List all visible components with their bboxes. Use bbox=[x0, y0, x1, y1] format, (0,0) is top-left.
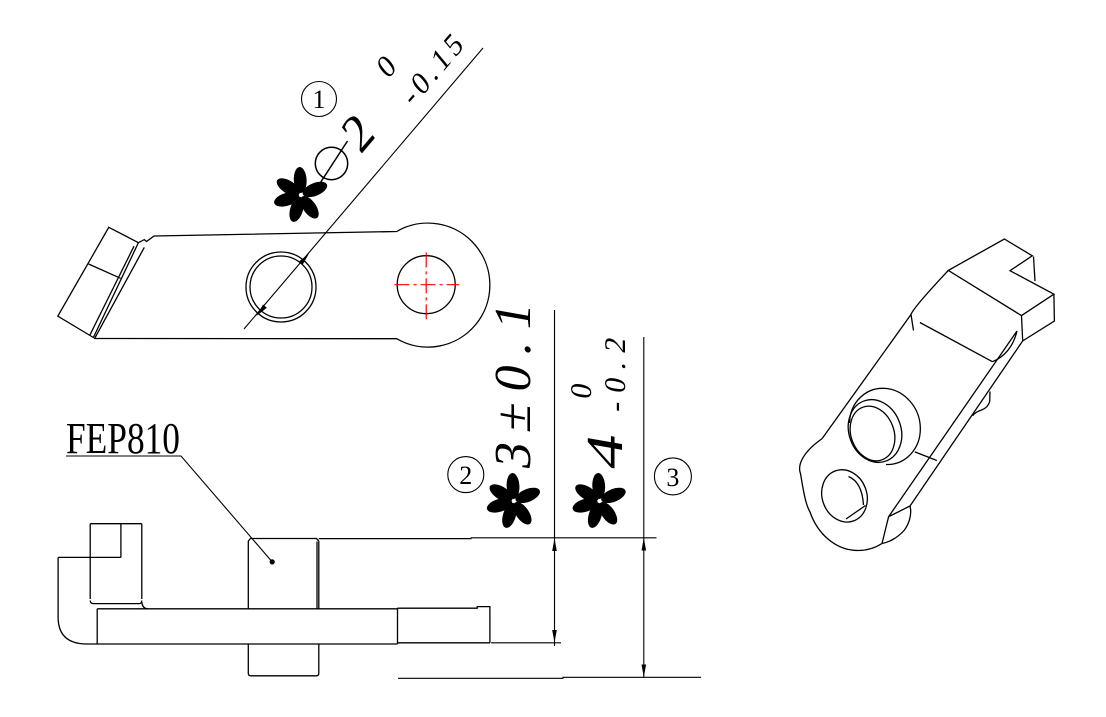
svg-text:2: 2 bbox=[459, 461, 472, 490]
svg-text:1: 1 bbox=[313, 85, 326, 114]
svg-text:3±0.1: 3±0.1 bbox=[484, 298, 542, 473]
svg-text:3: 3 bbox=[666, 463, 679, 492]
svg-text:FEP810: FEP810 bbox=[66, 414, 180, 463]
